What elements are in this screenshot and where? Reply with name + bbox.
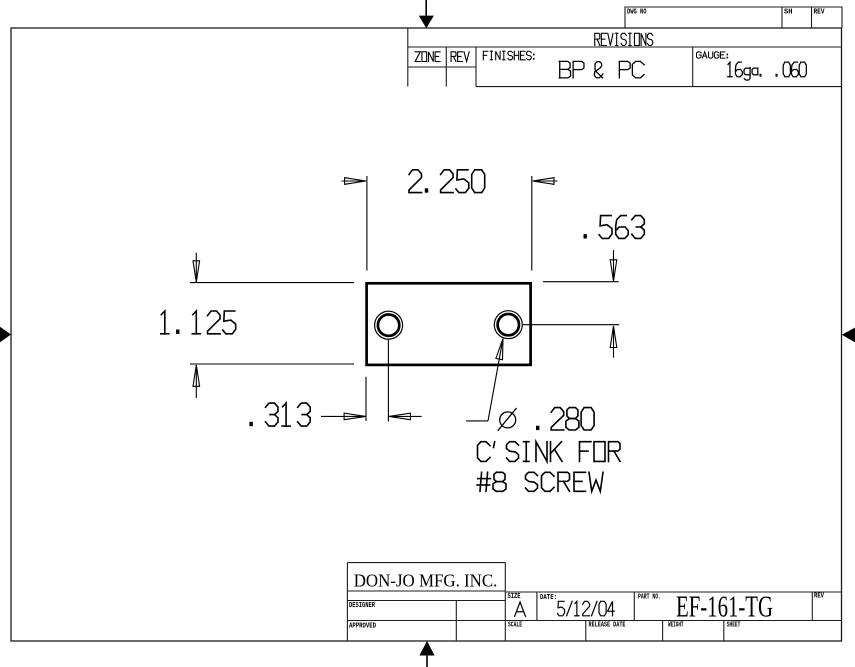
svg-text:DATE:: DATE: bbox=[540, 594, 557, 602]
svg-text:PART NO.: PART NO. bbox=[638, 593, 661, 601]
svg-text:SH: SH bbox=[784, 9, 792, 17]
svg-text:SCALE: SCALE bbox=[508, 622, 522, 630]
svg-text:DON-JO MFG. INC.: DON-JO MFG. INC. bbox=[354, 571, 498, 591]
svg-text:DWG NO: DWG NO bbox=[627, 9, 647, 17]
svg-text:APPROVED: APPROVED bbox=[349, 623, 376, 631]
svg-text:DESIGNER: DESIGNER bbox=[349, 602, 376, 610]
svg-text:REV: REV bbox=[814, 9, 826, 17]
svg-text:SHEET: SHEET bbox=[727, 622, 741, 630]
svg-text:EF-161-TG: EF-161-TG bbox=[676, 589, 773, 624]
svg-text:SIZE: SIZE bbox=[508, 593, 521, 601]
svg-text:REV: REV bbox=[814, 593, 825, 601]
svg-text:WEIGHT: WEIGHT bbox=[668, 622, 684, 630]
svg-text:RELEASE DATE: RELEASE DATE bbox=[589, 622, 626, 630]
